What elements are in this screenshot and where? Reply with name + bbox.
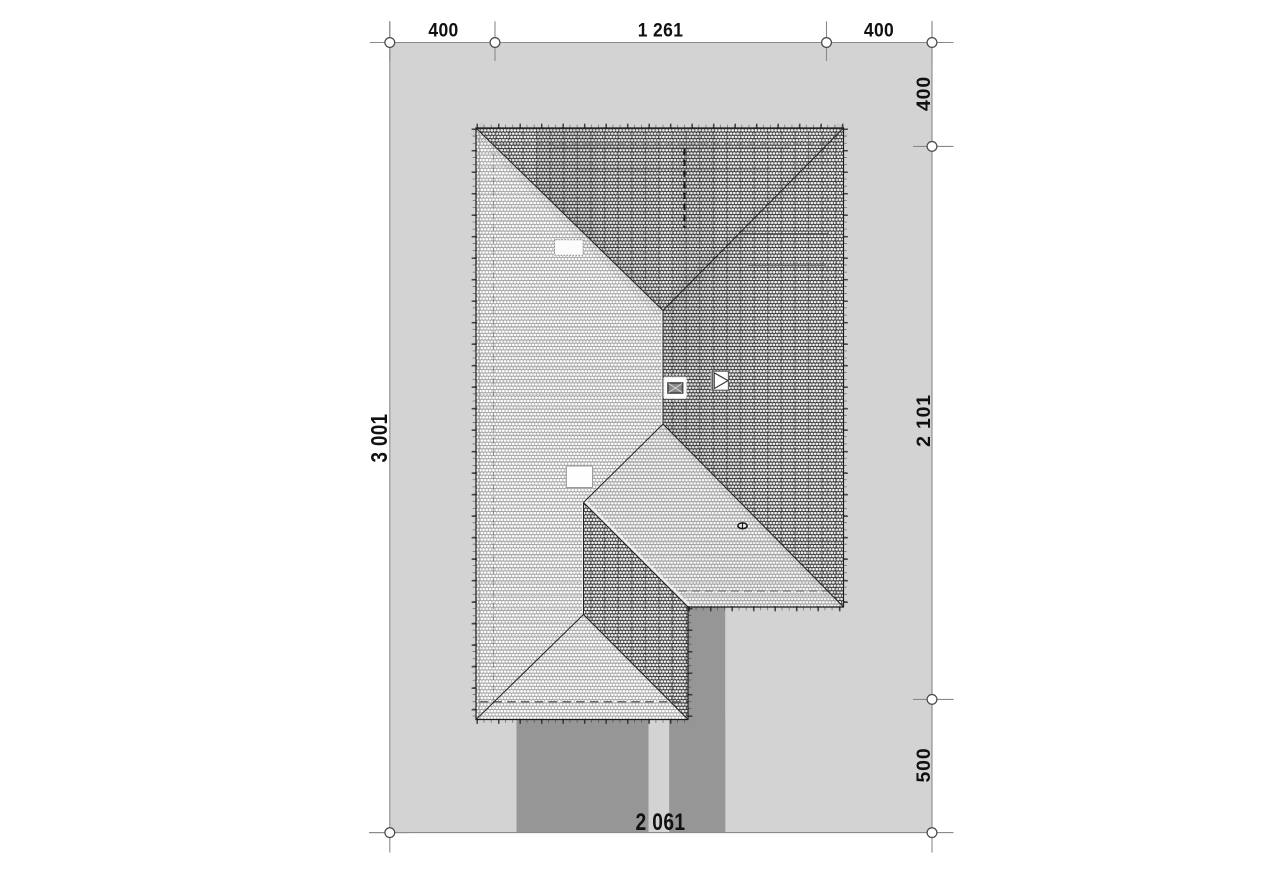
svg-text:400: 400	[913, 76, 935, 111]
svg-text:2 101: 2 101	[913, 394, 935, 447]
svg-text:400: 400	[428, 19, 458, 41]
svg-text:500: 500	[913, 748, 935, 783]
svg-text:400: 400	[864, 19, 894, 41]
svg-text:2 061: 2 061	[635, 808, 685, 836]
svg-text:1 261: 1 261	[638, 19, 684, 41]
svg-text:3 001: 3 001	[366, 413, 393, 462]
